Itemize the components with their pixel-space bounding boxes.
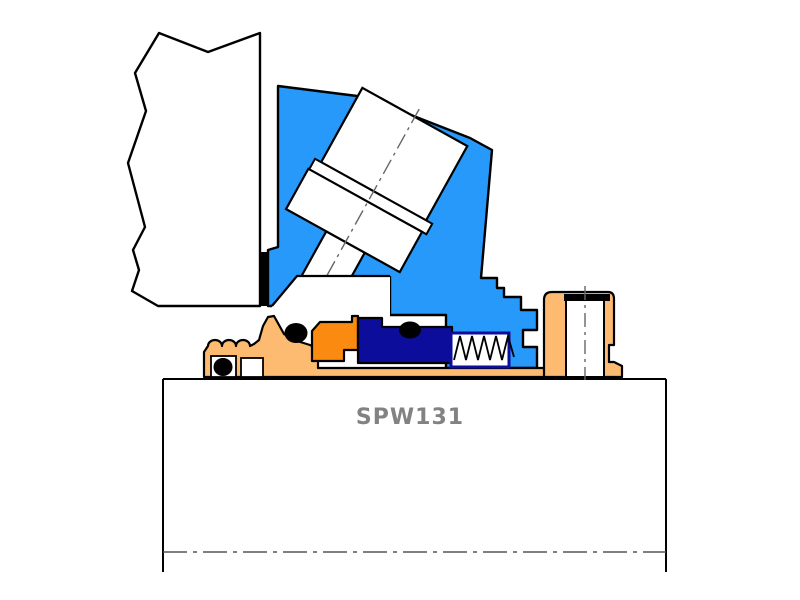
gland-gasket: [259, 252, 268, 306]
drive-collar: [544, 286, 622, 380]
housing-section: [128, 33, 260, 306]
shaft-label: SPW131: [356, 405, 464, 430]
collar-screw-cap: [564, 294, 610, 301]
seal-cross-section-drawing: SPW131: [0, 0, 800, 600]
oring-rotary: [285, 323, 308, 343]
oring-face: [399, 322, 421, 339]
oring-sleeve: [214, 358, 233, 376]
rotary-holder: [312, 316, 358, 361]
seal-diagram-canvas: SPW131: [0, 0, 800, 600]
spring-assembly: [451, 333, 514, 367]
collar-set-screw-bore: [566, 299, 604, 377]
sleeve-notch-right: [241, 358, 263, 377]
